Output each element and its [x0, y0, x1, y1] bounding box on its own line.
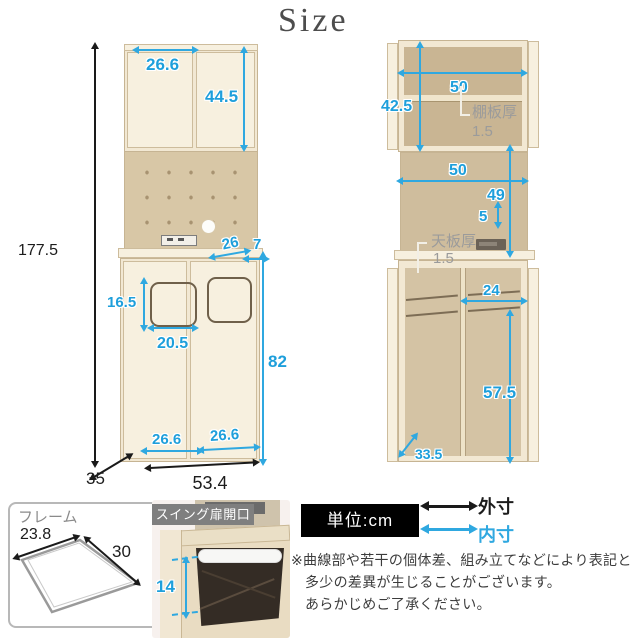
dim-label-mid-gap: 5: [479, 209, 487, 224]
dim-label-counter-edge: 7: [253, 237, 261, 252]
open-lower-door-right: [528, 268, 539, 462]
dim-arrow-upper-door-width: [138, 49, 193, 51]
dim-arrow-compartment-width: [466, 300, 522, 302]
swing-ribbon: スイング扉開口: [152, 504, 254, 525]
note-line2: 多少の差異が生じることがございます。: [305, 575, 561, 589]
front-handle-right: [207, 277, 252, 323]
outlet-rear-text-block: [479, 242, 497, 246]
open-upper-shelf: [404, 95, 522, 102]
outlet-socket-right: [178, 238, 184, 241]
dim-label-swing-opening-height: 14: [156, 578, 175, 595]
unit-box: 単位:cm: [301, 504, 419, 537]
page-title: Size: [278, 2, 349, 40]
dim-arrow-lower-left-door-width: [146, 450, 198, 452]
dim-label-handle-height: 16.5: [107, 295, 136, 310]
dim-arrow-handle-height: [143, 283, 145, 326]
legend-outer-arrow: [428, 505, 470, 508]
dim-label-frame-width: 23.8: [20, 527, 51, 543]
swing-photo-rolled-door: [198, 549, 282, 563]
top-board-leader-line-h: [417, 242, 427, 244]
dim-label-upper-door-width: 26.6: [146, 56, 179, 73]
top-thickness-label: 天板厚: [431, 233, 476, 252]
dim-label-lower-height: 82: [268, 353, 287, 370]
legend-outer-label: 外寸: [478, 498, 514, 516]
dim-arrow-overall-width: [150, 462, 254, 469]
dim-label-lower-left-door-width: 26.6: [152, 432, 181, 447]
dim-label-lower-inner-height: 57.5: [483, 384, 516, 401]
dim-arrow-upper-inner-width: [403, 72, 522, 74]
shelf-thickness-label: 棚板厚: [472, 104, 517, 123]
legend-inner-label: 内寸: [478, 521, 514, 547]
open-lower-door-left: [387, 268, 398, 462]
shelf-leader-line: [460, 86, 462, 116]
dim-arrow-overall-height: [94, 48, 96, 462]
dim-label-compartment-width: 24: [483, 283, 500, 298]
top-thickness-value: 1.5: [433, 250, 454, 269]
front-alcove-peg-holes: [136, 160, 244, 240]
dim-label-upper-door-height: 44.5: [205, 88, 238, 105]
shelf-thickness-value: 1.5: [472, 123, 493, 142]
outlet-socket-left: [167, 238, 173, 241]
dim-arrow-handle-width: [153, 327, 193, 329]
legend-inner-arrow: [428, 528, 470, 531]
dim-label-lower-right-door-width: 26.6: [210, 427, 240, 444]
dim-label-mid-inner-width: 50: [449, 163, 467, 179]
dim-arrow-lower-height: [262, 257, 264, 460]
dim-label-upper-inner-height: 42.5: [381, 99, 412, 115]
open-upper-door-right: [528, 41, 539, 148]
dim-label-upper-inner-width: 50: [450, 80, 468, 96]
dim-label-overall-height: 177.5: [8, 243, 68, 259]
note-line3: あらかじめご了承ください。: [305, 597, 491, 611]
note-line1: ※曲線部や若干の個体差、組み立てなどにより表記と: [291, 553, 632, 567]
dim-arrow-mid-gap: [497, 207, 499, 223]
top-board-leader-line: [417, 242, 419, 273]
dim-arrow-swing-opening-height: [185, 562, 187, 613]
dim-arrow-mid-inner-width: [402, 180, 523, 182]
front-handle-left: [150, 282, 197, 327]
dim-arrow-upper-inner-height: [419, 47, 421, 146]
open-upper-door-left: [387, 43, 398, 150]
dim-arrow-upper-door-height: [243, 52, 245, 146]
size-diagram: Size 177.5 26.6 44.5 26 7 16.5 20.5 82 2…: [0, 0, 640, 640]
dim-label-frame-depth: 30: [112, 543, 131, 560]
dim-label-handle-width: 20.5: [157, 336, 188, 352]
dim-label-overall-depth: 35: [86, 470, 105, 487]
dim-arrow-mid-inner-height: [509, 150, 511, 252]
cable-hole: [201, 219, 216, 234]
shelf-leader-line-h: [460, 114, 470, 116]
dim-label-lower-inner-depth: 33.5: [415, 447, 442, 461]
dim-label-overall-width: 53.4: [185, 474, 235, 492]
dim-label-shelf-depth: 26: [221, 234, 240, 252]
